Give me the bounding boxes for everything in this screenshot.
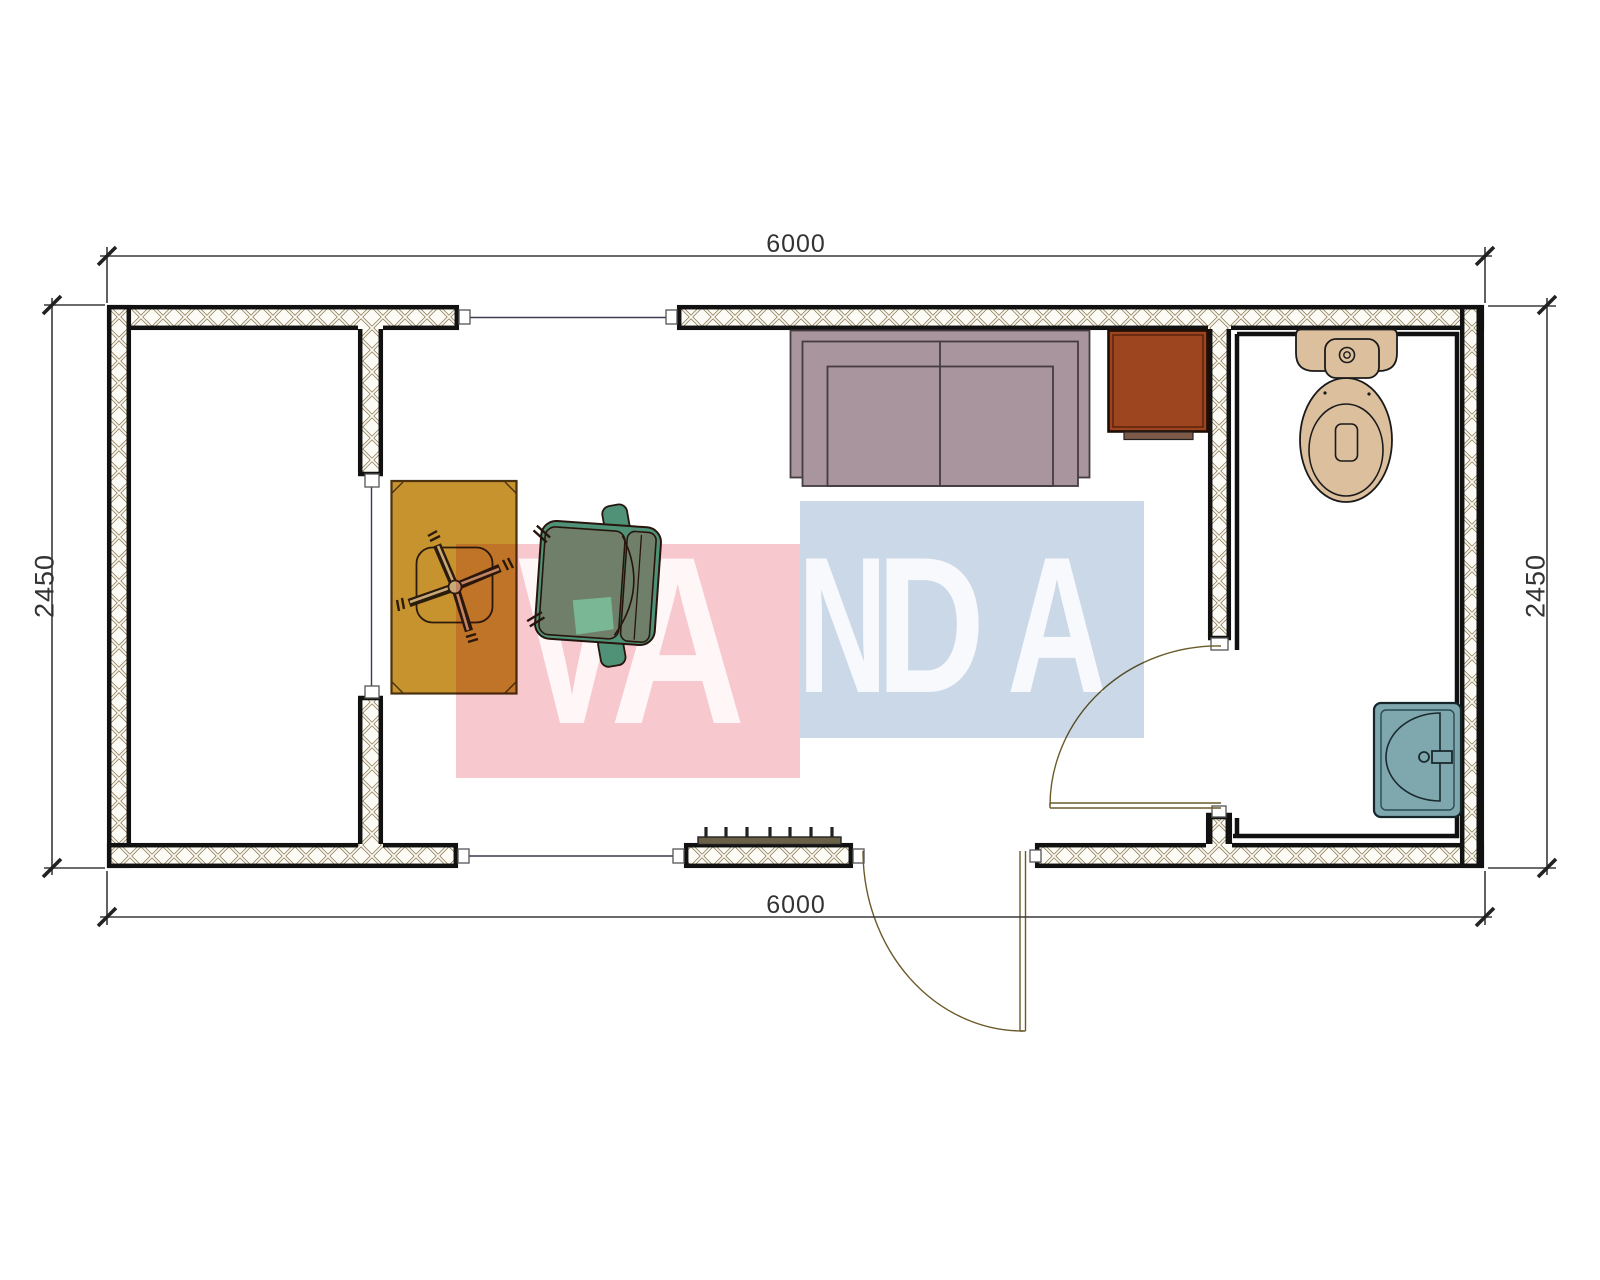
svg-text:6000: 6000 <box>766 230 826 258</box>
svg-text:2450: 2450 <box>30 554 60 618</box>
svg-text:2450: 2450 <box>1521 554 1551 618</box>
svg-text:6000: 6000 <box>766 891 826 919</box>
